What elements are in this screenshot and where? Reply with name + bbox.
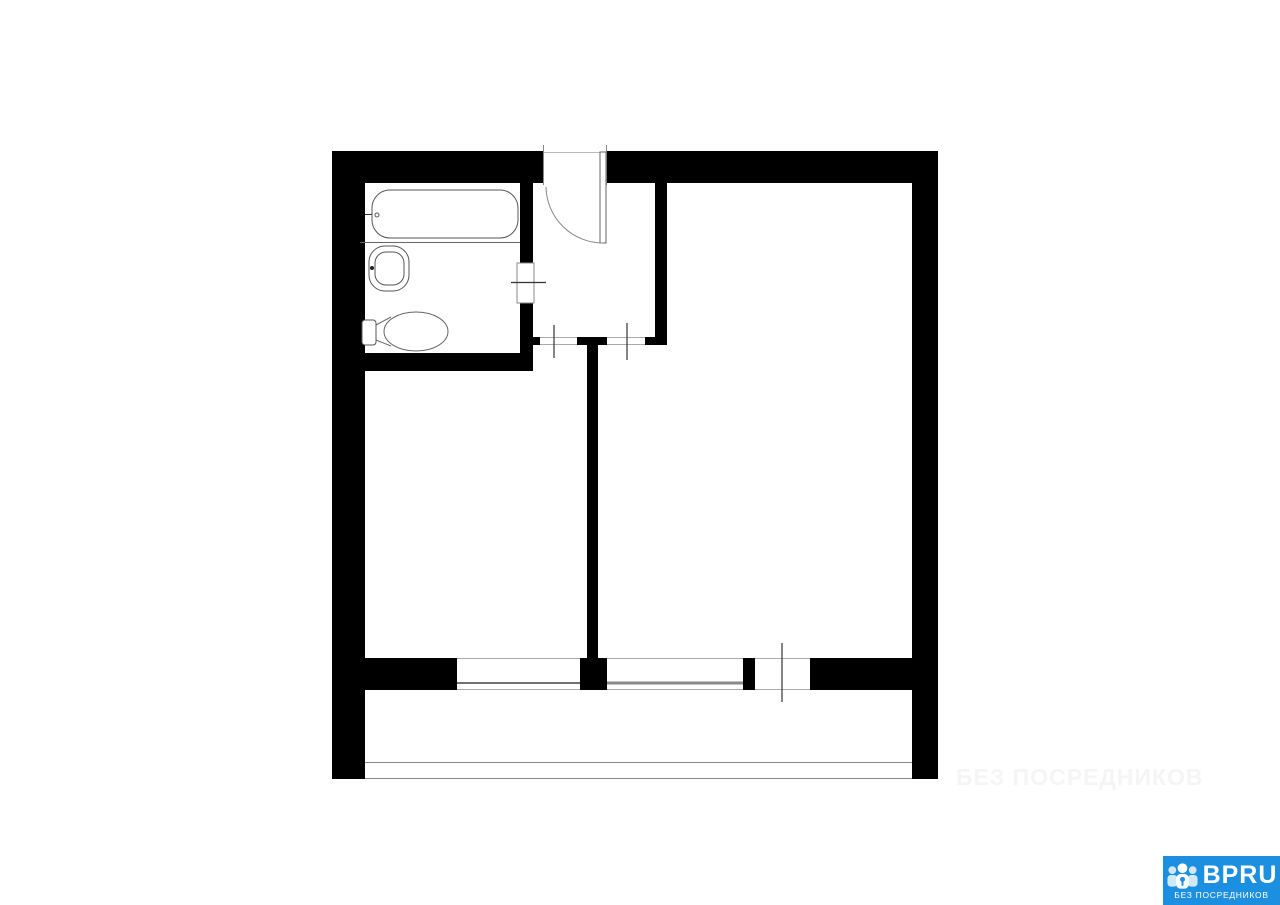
sink-tap-dot (370, 266, 374, 270)
people-group-icon (1166, 862, 1199, 890)
watermark-text: БЕЗ ПОСРЕДНИКОВ (956, 764, 1156, 794)
entrance-door-leaf (600, 152, 606, 243)
bathroom-door (511, 263, 546, 303)
page: БЕЗ ПОСРЕДНИКОВ BPRU БЕЗ ПОСРЕДНИКОВ (0, 0, 1280, 905)
sink-basin (375, 252, 404, 285)
wall-bathroom-bottom (352, 353, 533, 371)
entrance-opening (543, 149, 607, 184)
wall-top-right (607, 151, 938, 183)
wall-hall-band-pier (577, 337, 607, 345)
wall-bottom-segment-2 (810, 658, 912, 690)
bpru-logo-badge[interactable]: BPRU БЕЗ ПОСРЕДНИКОВ (1163, 856, 1280, 905)
wall-hall-band-nub (533, 337, 540, 345)
logo-top-row: BPRU (1166, 862, 1278, 890)
toilet-icon (384, 312, 448, 351)
wall-hallway-right (655, 183, 667, 345)
wall-between-rooms (587, 345, 598, 658)
wall-bottom-pier-mid (580, 658, 607, 690)
wall-right (912, 151, 938, 779)
wall-hall-band-corner (645, 337, 667, 345)
wall-bottom-segment-1 (358, 658, 457, 690)
entrance-door-arc (546, 187, 603, 243)
logo-brand-text: BPRU (1203, 863, 1278, 888)
toilet-tank (362, 320, 376, 345)
bathtub-icon (372, 190, 518, 238)
wall-bottom-pier-right (743, 658, 755, 690)
logo-tagline-text: БЕЗ ПОСРЕДНИКОВ (1174, 891, 1268, 900)
entrance-door (543, 145, 607, 243)
wall-bathroom-right-upper (520, 183, 533, 263)
